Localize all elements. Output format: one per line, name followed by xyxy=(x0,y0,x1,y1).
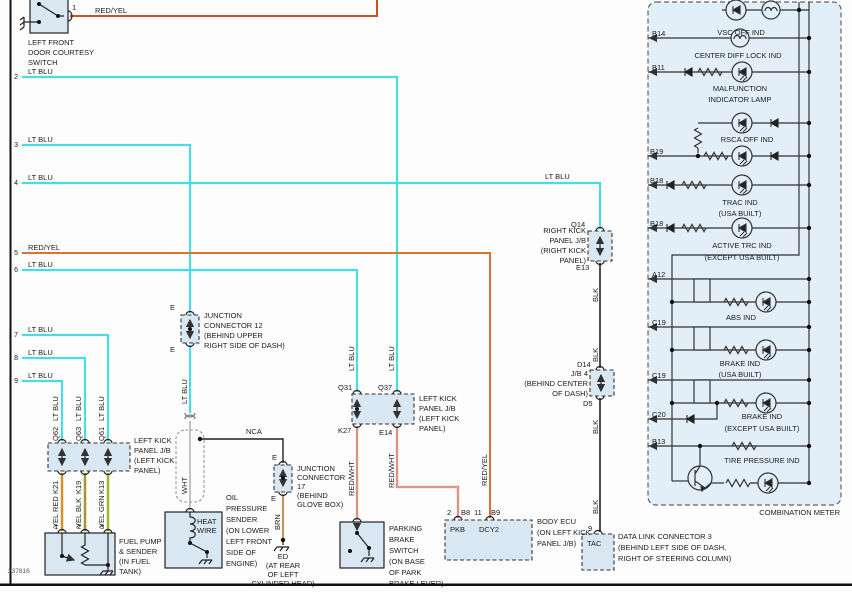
jb2-name-2: PANEL J/B xyxy=(419,404,456,413)
pb-name-2: BRAKE xyxy=(389,535,414,544)
wire-label-brn: BRN xyxy=(273,514,282,530)
jb2-pin-top-1: Q31 xyxy=(338,383,352,392)
dlc3-name-2: (BEHIND LEFT SIDE OF DASH, xyxy=(618,543,726,552)
wire-label-blk-4: BLK xyxy=(591,500,600,514)
ind-brake-exc-1: BRAKE IND xyxy=(707,412,817,421)
oil-name-2: PRESSURE xyxy=(226,504,267,513)
jc17-name-2: CONNECTOR xyxy=(297,473,345,482)
pump-pin-2: 2 xyxy=(77,522,81,531)
jb1-name-3: (LEFT KICK xyxy=(134,456,174,465)
wire-label-2: LT BLU xyxy=(28,67,53,76)
ind-brake-usa-1: BRAKE IND xyxy=(685,359,795,368)
meter-pin-b14: B14 xyxy=(652,29,665,38)
ind-mil-1: MALFUNCTION xyxy=(685,84,795,93)
rkp-name-1: RIGHT KICK xyxy=(514,226,586,235)
jc17-name-1: JUNCTION xyxy=(297,464,335,473)
jb4-pin-top: D14 xyxy=(577,360,591,369)
jc12-pin-bottom: E xyxy=(170,345,175,354)
line-number-6: 6 xyxy=(4,266,18,275)
jb1-pin-bot-2: K19 xyxy=(74,481,83,494)
line-number-3: 3 xyxy=(4,141,18,150)
fuel-pump-box xyxy=(45,533,115,575)
line-number-2: 2 xyxy=(4,73,18,82)
wire-label-9: LT BLU xyxy=(28,371,53,380)
pump-pin-1: 1 xyxy=(54,522,58,531)
jb4-name-2: (BEHIND CENTER xyxy=(506,379,588,388)
ed-ground-4: CYLINDER HEAD) xyxy=(243,579,323,588)
jc17-name-5: GLOVE BOX) xyxy=(297,500,343,509)
ind-atrc-2: (EXCEPT USA BUILT) xyxy=(687,253,797,262)
meter-pin-a12: A12 xyxy=(652,270,665,279)
ecu-name-2: (ON LEFT KICK xyxy=(537,528,591,537)
ind-abs: ABS IND xyxy=(686,313,796,322)
pb-name-5: OF PARK xyxy=(389,568,421,577)
jb2-wire-bot-1: RED/WHT xyxy=(347,461,356,496)
jc17-pin-bottom: E xyxy=(271,494,276,503)
pump-name-4: TANK) xyxy=(119,567,141,576)
wire-label-4: LT BLU xyxy=(28,173,53,182)
wire-label-6: LT BLU xyxy=(28,260,53,269)
dlc3-name-1: DATA LINK CONNECTOR 3 xyxy=(618,532,712,541)
jc12-name-1: JUNCTION xyxy=(204,311,242,320)
line-number-9: 9 xyxy=(4,377,18,386)
jb1-pin-top-1: Q62 xyxy=(51,427,60,441)
pb-name-1: PARKING xyxy=(389,524,422,533)
dlc3-inner: TAC xyxy=(587,539,601,548)
meter-pin-c19b: C19 xyxy=(652,371,666,380)
ecu-name-1: BODY ECU xyxy=(537,517,576,526)
oil-name-1: OIL xyxy=(226,493,238,502)
wire-label-8: LT BLU xyxy=(28,348,53,357)
jb4-name-1: J/B 4 xyxy=(506,369,588,378)
rkp-pin-bottom: E13 xyxy=(576,263,589,272)
ind-brake-exc-2: (EXCEPT USA BUILT) xyxy=(707,424,817,433)
jb1-wire-top-3: LT BLU xyxy=(97,396,106,421)
ind-vsc-off: VSC OFF IND xyxy=(686,28,796,37)
jc12-name-2: CONNECTOR 12 xyxy=(204,321,263,330)
wire-label-3: LT BLU xyxy=(28,135,53,144)
wire-label-5: RED/YEL xyxy=(28,243,60,252)
courtesy-name-3: SWITCH xyxy=(28,58,58,67)
meter-pin-b11: B11 xyxy=(652,63,665,72)
ecu-pin2-label: DCY2 xyxy=(479,525,499,534)
meter-pin-b13: B13 xyxy=(652,437,665,446)
wire-label-nca: NCA xyxy=(246,427,262,436)
ind-atrc-1: ACTIVE TRC IND xyxy=(687,241,797,250)
jb2-wire-top-2: LT BLU xyxy=(387,346,396,371)
jc17-pin-top: E xyxy=(272,453,277,462)
jb1-name-2: PANEL J/B xyxy=(134,446,171,455)
dlc3-pin: 9 xyxy=(588,524,592,533)
wire-label-redyel-top: RED/YEL xyxy=(95,6,127,15)
wire-label-blk-1: BLK xyxy=(591,288,600,302)
ecu-pin2-id: B9 xyxy=(491,508,500,517)
jb2-wire-top-1: LT BLU xyxy=(347,346,356,371)
jb2-name-1: LEFT KICK xyxy=(419,394,457,403)
left-kick-jb1-box xyxy=(48,443,130,471)
meter-driver-blocks xyxy=(694,279,710,403)
jb1-pin-top-3: Q61 xyxy=(97,427,106,441)
pump-name-2: & SENDER xyxy=(119,547,157,556)
jb2-name-4: PANEL) xyxy=(419,424,446,433)
jb2-pin-top-2: Q37 xyxy=(378,383,392,392)
ecu-name-3: PANEL J/B) xyxy=(537,539,576,548)
jb2-pin-bot-1: K27 xyxy=(338,426,351,435)
wire-label-blk-2: BLK xyxy=(591,348,600,362)
ind-mil-2: INDICATOR LAMP xyxy=(685,95,795,104)
wire-label-wht: WHT xyxy=(180,477,189,494)
combination-meter-title: COMBINATION METER xyxy=(740,508,840,517)
wire-label-redyel-ecu: RED/YEL xyxy=(480,454,489,486)
courtesy-name-2: DOOR COURTESY xyxy=(28,48,94,57)
dlc3-name-3: RIGHT OF STEERING COLUMN) xyxy=(618,554,731,563)
ind-center-diff: CENTER DIFF LOCK IND xyxy=(683,51,793,60)
jb1-wire-top-1: LT BLU xyxy=(51,396,60,421)
rkp-name-3: (RIGHT KICK xyxy=(514,246,586,255)
jc12-name-4: RIGHT SIDE OF DASH) xyxy=(204,341,285,350)
jb4-box xyxy=(590,370,614,396)
junction-boxes xyxy=(48,231,614,570)
ecu-pin1-num: 2 xyxy=(447,508,451,517)
oil-inner-2: WIRE xyxy=(197,526,217,535)
line-number-7: 7 xyxy=(4,331,18,340)
jc12-wire-below: LT BLU xyxy=(180,379,189,404)
oil-name-5: LEFT FRONT xyxy=(226,537,272,546)
jb1-name-4: PANEL) xyxy=(134,466,161,475)
pump-pin-3: 3 xyxy=(100,522,104,531)
figure-number: 237816 xyxy=(8,567,30,576)
line-number-4: 4 xyxy=(4,179,18,188)
line-number-8: 8 xyxy=(4,354,18,363)
oil-name-4: (ON LOWER xyxy=(226,526,269,535)
jb1-pin-bot-3: K13 xyxy=(97,481,106,494)
ind-rsca: RSCA OFF IND xyxy=(692,135,802,144)
ind-tire-pressure: TIRE PRESSURE IND xyxy=(707,456,817,465)
wire-label-blk-3: BLK xyxy=(591,420,600,434)
ind-brake-usa-2: (USA BUILT) xyxy=(685,370,795,379)
oil-inner-1: HEAT xyxy=(197,517,216,526)
meter-pin-c19a: C19 xyxy=(652,318,666,327)
jc17-name-4: (BEHIND xyxy=(297,491,328,500)
jb1-pin-top-2: Q63 xyxy=(74,427,83,441)
meter-pin-b18b: B18 xyxy=(650,219,663,228)
pump-name-1: FUEL PUMP xyxy=(119,537,162,546)
wiring-diagram: 1 RED/YEL LEFT FRONT DOOR COURTESY SWITC… xyxy=(0,0,852,592)
meter-pin-c20: C20 xyxy=(652,410,666,419)
left-kick-jb2-box xyxy=(352,394,414,424)
jb1-name-1: LEFT KICK xyxy=(134,436,172,445)
meter-pin-b19: B19 xyxy=(650,147,663,156)
line-number-5: 5 xyxy=(4,249,18,258)
meter-pin-b18a: B18 xyxy=(650,176,663,185)
ind-trac-2: (USA BUILT) xyxy=(685,209,795,218)
jb4-name-3: OF DASH) xyxy=(506,389,588,398)
jb1-wire-top-2: LT BLU xyxy=(74,396,83,421)
jb2-name-3: (LEFT KICK xyxy=(419,414,459,423)
ed-ground-3: OF LEFT xyxy=(243,570,323,579)
device-boxes xyxy=(30,0,384,575)
ecu-pin1-id: B8 xyxy=(461,508,470,517)
jb4-pin-bottom: D5 xyxy=(583,399,593,408)
courtesy-name-1: LEFT FRONT xyxy=(28,38,74,47)
pb-name-6: BRAKE LEVER) xyxy=(389,579,444,588)
ecu-pin1-label: PKB xyxy=(450,525,465,534)
jc12-name-3: (BEHIND UPPER xyxy=(204,331,263,340)
pb-name-4: (ON BASE xyxy=(389,557,425,566)
ecu-pin2-num: 11 xyxy=(474,508,482,517)
pb-name-3: SWITCH xyxy=(389,546,419,555)
ed-ground-1: ED xyxy=(243,552,323,561)
pump-name-3: (IN FUEL xyxy=(119,557,150,566)
jb1-pin-bot-1: K21 xyxy=(51,481,60,494)
ed-ground-2: (AT REAR xyxy=(243,561,323,570)
oil-name-3: SENDER xyxy=(226,515,257,524)
jc12-pin-top: E xyxy=(170,303,175,312)
jb2-pin-bot-2: E14 xyxy=(379,428,392,437)
jc17-name-3: 17 xyxy=(297,482,305,491)
wire-label-7: LT BLU xyxy=(28,325,53,334)
courtesy-pin-label: 1 xyxy=(72,3,76,12)
ind-trac-1: TRAC IND xyxy=(685,198,795,207)
wire-label-4b: LT BLU xyxy=(545,172,570,181)
jb2-wire-bot-2: RED/WHT xyxy=(387,453,396,488)
rkp-name-2: PANEL J/B xyxy=(514,236,586,245)
